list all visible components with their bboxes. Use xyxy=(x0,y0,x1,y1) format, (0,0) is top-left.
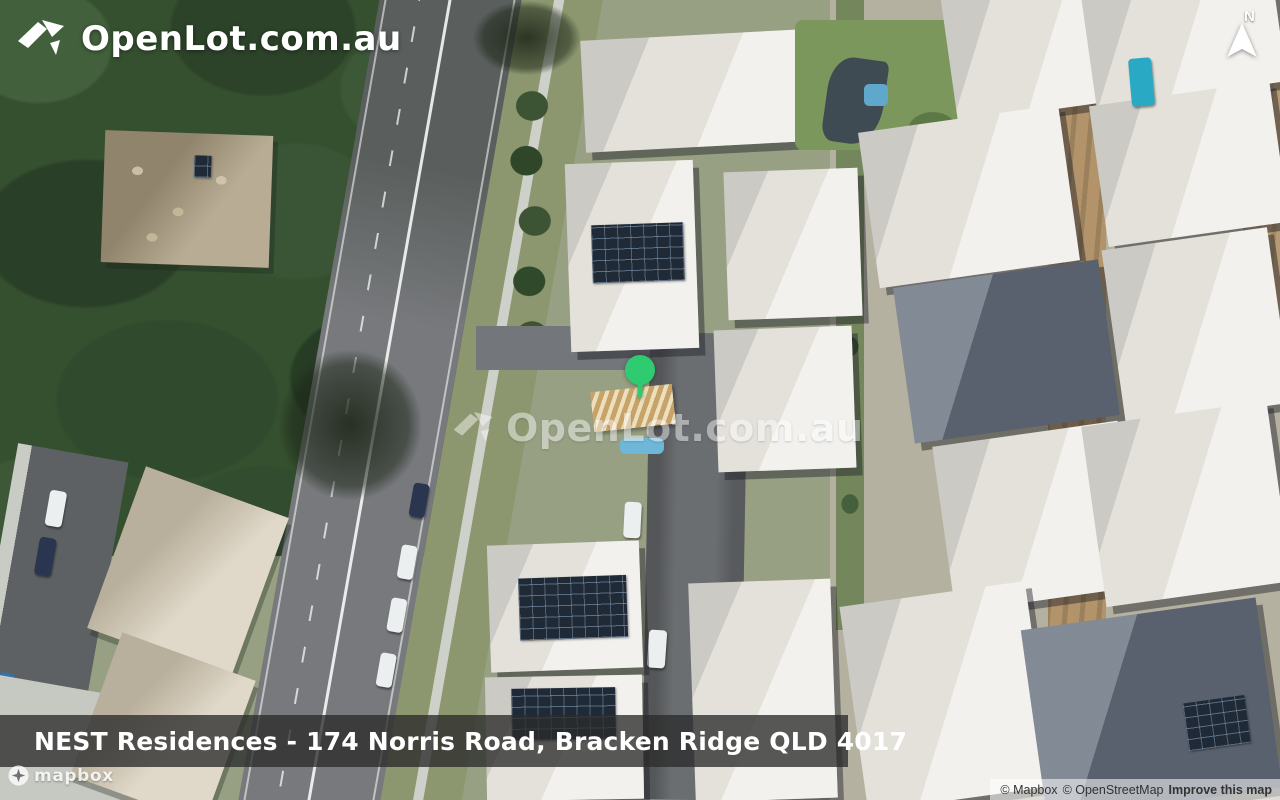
north-arrow-icon xyxy=(1224,21,1260,59)
parked-car xyxy=(623,502,642,539)
mapbox-logo[interactable]: mapbox xyxy=(8,765,114,786)
trampoline xyxy=(864,84,888,106)
osm-attribution-link[interactable]: © OpenStreetMap xyxy=(1063,783,1164,797)
property-title-bar: NEST Residences - 174 Norris Road, Brack… xyxy=(0,715,848,767)
map-attribution: © Mapbox © OpenStreetMap Improve this ma… xyxy=(990,779,1280,800)
house-roof xyxy=(840,581,1054,800)
improve-map-link[interactable]: Improve this map xyxy=(1169,783,1273,797)
openlot-gem-icon xyxy=(16,13,68,65)
openlot-logo: OpenLot.com.au xyxy=(16,13,402,65)
watermark-text: OpenLot.com.au xyxy=(506,406,864,450)
townhouse-roof xyxy=(714,326,857,473)
property-title: NEST Residences - 174 Norris Road, Brack… xyxy=(34,727,907,756)
house-roof xyxy=(1081,401,1280,607)
house-roof xyxy=(1101,227,1280,426)
satellite-map-viewport[interactable]: OpenLot.com.au N OpenLot.com.au NEST Res… xyxy=(0,0,1280,800)
solar-panel-array xyxy=(591,222,685,283)
openlot-gem-icon xyxy=(452,406,496,450)
townhouse-roof xyxy=(487,540,643,672)
openlot-logo-text: OpenLot.com.au xyxy=(81,19,402,59)
house-roof xyxy=(1021,597,1280,800)
solar-panel-array xyxy=(518,575,628,641)
solar-panel-array xyxy=(194,155,212,178)
openlot-watermark: OpenLot.com.au xyxy=(452,406,864,450)
mapbox-attribution-link[interactable]: © Mapbox xyxy=(1000,783,1057,797)
parked-car xyxy=(1128,57,1155,107)
mapbox-wordmark: mapbox xyxy=(34,766,114,786)
tree-canopy xyxy=(250,320,450,530)
parked-car xyxy=(647,629,668,668)
townhouse-roof xyxy=(723,168,862,321)
house-roof xyxy=(1089,81,1280,247)
parked-car xyxy=(396,544,418,580)
parked-car xyxy=(34,536,57,576)
house-roof xyxy=(101,130,274,268)
mapbox-icon xyxy=(8,765,29,786)
house-roof xyxy=(858,105,1080,289)
parked-car xyxy=(44,489,67,527)
solar-panel-array xyxy=(1183,695,1251,751)
property-marker[interactable] xyxy=(621,354,659,409)
townhouse-roof xyxy=(565,160,699,352)
north-indicator: N xyxy=(1222,8,1270,60)
house-roof xyxy=(893,259,1120,443)
